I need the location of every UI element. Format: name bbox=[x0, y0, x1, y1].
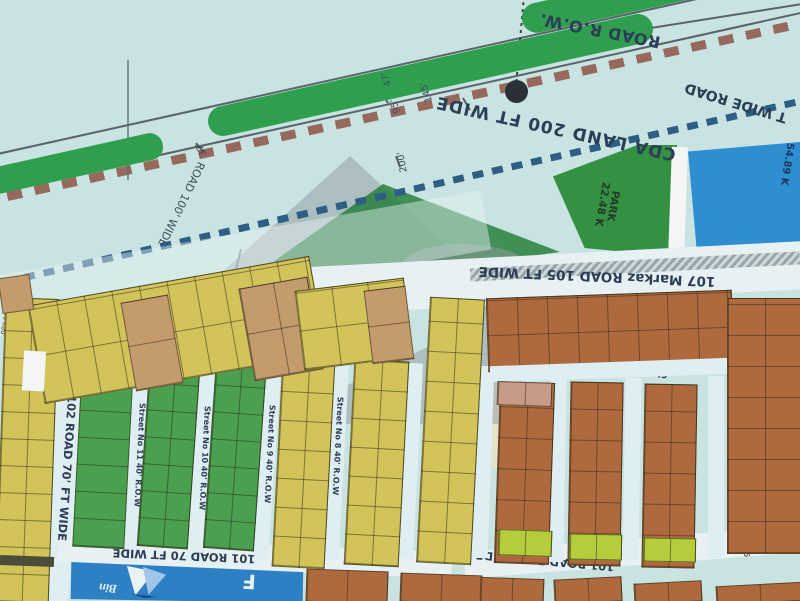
plot-cell-highlight bbox=[643, 538, 696, 563]
plot-block-yellow-d bbox=[272, 357, 336, 569]
plot-block-cut bbox=[716, 582, 800, 601]
plot-block-cut bbox=[553, 576, 622, 601]
street-band-1 bbox=[708, 376, 724, 558]
plot-cell-highlight bbox=[569, 534, 622, 561]
green-median-segment bbox=[205, 11, 656, 139]
plot-cell-highlight bbox=[498, 529, 553, 557]
park-area bbox=[545, 145, 677, 257]
masjid-plot bbox=[22, 350, 46, 391]
dim-tick bbox=[395, 156, 401, 168]
plot-block-cut bbox=[305, 569, 388, 601]
white-strip bbox=[668, 147, 688, 257]
plot-cell-tan bbox=[0, 274, 34, 314]
plot-cell-pink bbox=[497, 381, 553, 407]
dark-label-strip bbox=[0, 555, 54, 567]
sail-logo-icon bbox=[117, 562, 173, 601]
plot-block-cut bbox=[400, 573, 483, 601]
plot-block-orange-j bbox=[727, 298, 800, 554]
plot-block-cut bbox=[480, 577, 545, 601]
street-band-3 bbox=[622, 378, 641, 560]
plot-block-yellow-e bbox=[344, 359, 410, 568]
boundary-dot bbox=[505, 80, 528, 103]
plot-block-cut bbox=[633, 580, 702, 601]
plot-map: ROAD R.O.W.CDA LAND 200 FT WIDEWest Serv… bbox=[0, 0, 800, 601]
plot-cell-tan bbox=[364, 286, 415, 365]
